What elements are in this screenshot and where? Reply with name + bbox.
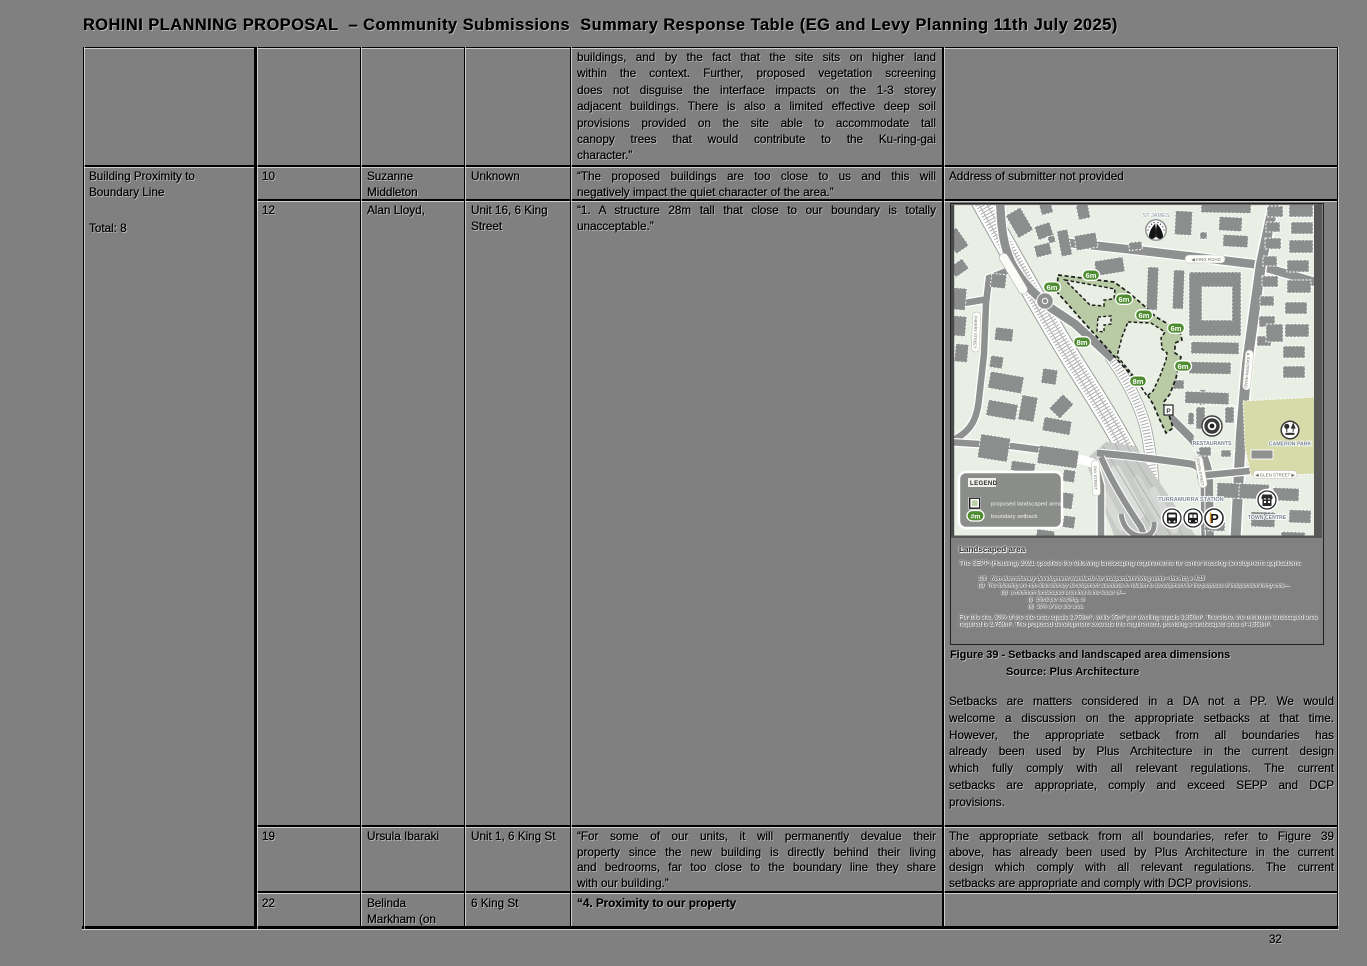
svg-text:P: P [1210, 511, 1219, 526]
svg-text:TURRAMURRA STATION: TURRAMURRA STATION [1158, 497, 1223, 503]
svg-text:8m: 8m [1133, 376, 1144, 385]
svg-text:RAY STREET: RAY STREET [1093, 465, 1099, 490]
svg-text:6m: 6m [1139, 310, 1150, 319]
svg-text:8m: 8m [1077, 337, 1088, 346]
svg-text:CAMERON PARK: CAMERON PARK [1269, 441, 1312, 447]
svg-text:TOWN CENTRE: TOWN CENTRE [1248, 515, 1287, 521]
svg-text:◀ GLEN STREET ▶: ◀ GLEN STREET ▶ [1255, 472, 1295, 477]
svg-text:6m: 6m [1171, 323, 1182, 332]
svg-text:6m: 6m [1086, 270, 1097, 279]
svg-text:proposed landscaped area: proposed landscaped area [991, 501, 1061, 507]
svg-text:LEGEND: LEGEND [970, 481, 998, 487]
svg-text:6m: 6m [1119, 294, 1130, 303]
svg-text:ST JAMES: ST JAMES [1142, 213, 1170, 219]
svg-text:P: P [1166, 408, 1171, 415]
svg-text:#m: #m [971, 513, 981, 520]
svg-text:boundary setback: boundary setback [991, 514, 1038, 520]
svg-text:RESTAURANTS: RESTAURANTS [1193, 441, 1232, 447]
svg-text:◀ KING ROAD: ◀ KING ROAD [1191, 257, 1220, 262]
svg-text:6m: 6m [1178, 361, 1189, 370]
svg-text:6m: 6m [1047, 282, 1058, 291]
